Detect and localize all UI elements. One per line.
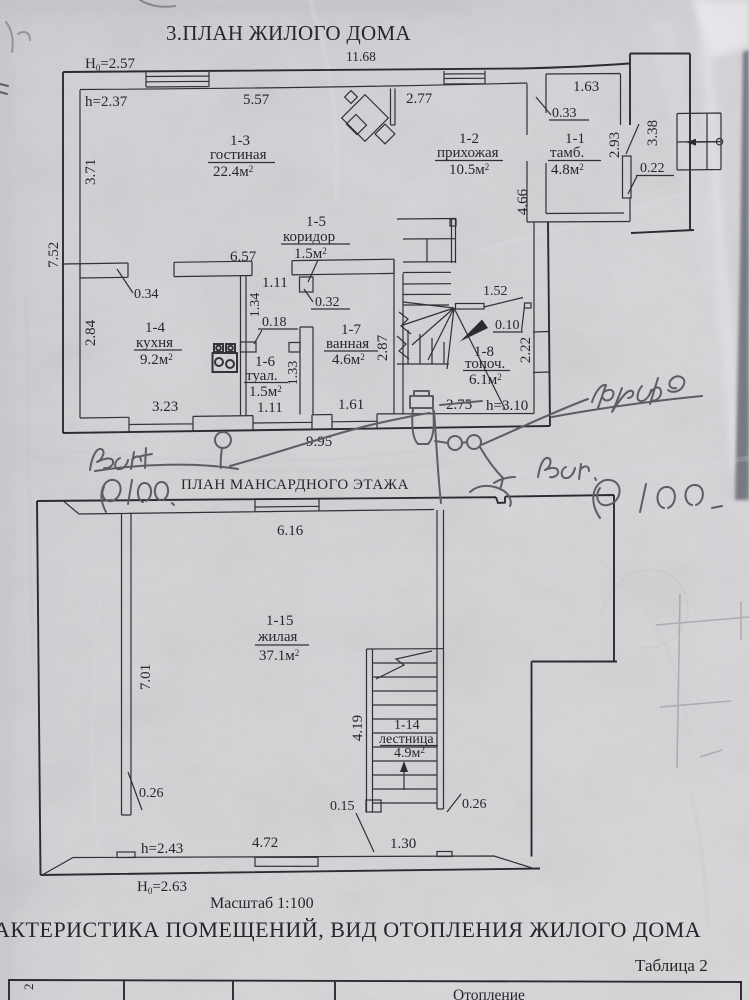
svg-text:ПЛАН МАНСАРДНОГО ЭТАЖА: ПЛАН МАНСАРДНОГО ЭТАЖА (181, 477, 409, 493)
svg-text:H0=2.57: H0=2.57 (85, 56, 136, 73)
svg-text:1-5: 1-5 (306, 214, 326, 230)
svg-text:кухня: кухня (136, 335, 173, 351)
svg-text:22.4м2: 22.4м2 (213, 164, 253, 180)
svg-text:1.11: 1.11 (257, 400, 283, 416)
svg-text:Таблица 2: Таблица 2 (635, 956, 708, 975)
svg-text:5.57: 5.57 (243, 92, 270, 108)
svg-text:4.6м2: 4.6м2 (332, 352, 365, 368)
svg-text:2.77: 2.77 (406, 91, 433, 107)
svg-text:1.34: 1.34 (248, 293, 263, 318)
svg-text:4.66: 4.66 (515, 188, 531, 215)
svg-text:Масштаб 1:100: Масштаб 1:100 (210, 895, 314, 912)
svg-text:0.15: 0.15 (330, 799, 355, 814)
svg-text:туал.: туал. (246, 368, 278, 384)
svg-text:1.52: 1.52 (483, 284, 508, 299)
svg-text:0.32: 0.32 (315, 295, 340, 310)
svg-text:2.84: 2.84 (83, 319, 99, 346)
svg-text:h=2.43: h=2.43 (141, 841, 183, 857)
svg-text:коридор: коридор (283, 229, 335, 245)
svg-text:H0=2.63: H0=2.63 (137, 879, 187, 896)
svg-text:3.71: 3.71 (83, 159, 99, 185)
svg-text:0.22: 0.22 (640, 161, 665, 176)
svg-text:ванная: ванная (326, 336, 369, 352)
svg-text:0.34: 0.34 (134, 287, 159, 302)
svg-text:0.26: 0.26 (462, 797, 487, 812)
svg-text:0.10: 0.10 (495, 318, 520, 333)
svg-text:1-14: 1-14 (394, 718, 420, 733)
svg-text:1.61: 1.61 (338, 397, 364, 413)
svg-text:1.5м2: 1.5м2 (249, 384, 282, 400)
svg-text:2.93: 2.93 (607, 132, 623, 158)
svg-text:3.ПЛАН ЖИЛОГО ДОМА: 3.ПЛАН ЖИЛОГО ДОМА (166, 21, 411, 45)
svg-text:4.72: 4.72 (252, 835, 278, 851)
svg-text:37.1м2: 37.1м2 (259, 648, 299, 664)
svg-text:лестница: лестница (379, 732, 434, 747)
svg-text:4.8м2: 4.8м2 (551, 162, 584, 178)
svg-text:6.1м2: 6.1м2 (469, 372, 502, 388)
svg-text:h=2.37: h=2.37 (85, 94, 128, 110)
svg-text:4.19: 4.19 (350, 715, 366, 741)
svg-text:АКТЕРИСТИКА ПОМЕЩЕНИЙ, ВИД ОТО: АКТЕРИСТИКА ПОМЕЩЕНИЙ, ВИД ОТОПЛЕНИЯ ЖИЛ… (0, 917, 701, 942)
svg-text:2.22: 2.22 (518, 337, 534, 363)
svg-text:7.52: 7.52 (46, 242, 62, 268)
svg-text:h=3.10: h=3.10 (486, 398, 528, 414)
svg-text:топоч.: топоч. (465, 356, 505, 372)
svg-text:6.16: 6.16 (277, 523, 304, 539)
svg-text:прихожая: прихожая (437, 145, 499, 161)
svg-text:10.5м2: 10.5м2 (449, 162, 489, 178)
svg-text:1.5м2: 1.5м2 (294, 246, 327, 262)
svg-text:0.33: 0.33 (552, 106, 577, 121)
svg-text:0.26: 0.26 (139, 786, 164, 801)
svg-text:тамб.: тамб. (550, 145, 584, 161)
svg-text:11.68: 11.68 (346, 49, 376, 64)
svg-text:1-15: 1-15 (266, 613, 294, 629)
svg-text:1.63: 1.63 (573, 79, 599, 95)
svg-text:0.18: 0.18 (262, 315, 287, 330)
svg-text:3.23: 3.23 (152, 399, 178, 415)
svg-text:3.38: 3.38 (645, 120, 661, 146)
svg-text:жилая: жилая (257, 629, 298, 645)
svg-text:1-4: 1-4 (145, 320, 165, 336)
svg-text:гостиная: гостиная (210, 147, 267, 163)
svg-text:2.87: 2.87 (375, 334, 391, 361)
svg-text:6.57: 6.57 (230, 249, 257, 265)
svg-text:7.01: 7.01 (138, 664, 154, 690)
svg-text:1.11: 1.11 (262, 275, 288, 291)
svg-text:9.2м2: 9.2м2 (140, 352, 173, 368)
svg-text:Отопление: Отопление (453, 987, 525, 1000)
svg-text:2: 2 (21, 984, 36, 991)
svg-text:1.33: 1.33 (286, 361, 301, 386)
svg-text:4.9м2: 4.9м2 (394, 745, 425, 761)
svg-text:1.30: 1.30 (390, 836, 416, 852)
